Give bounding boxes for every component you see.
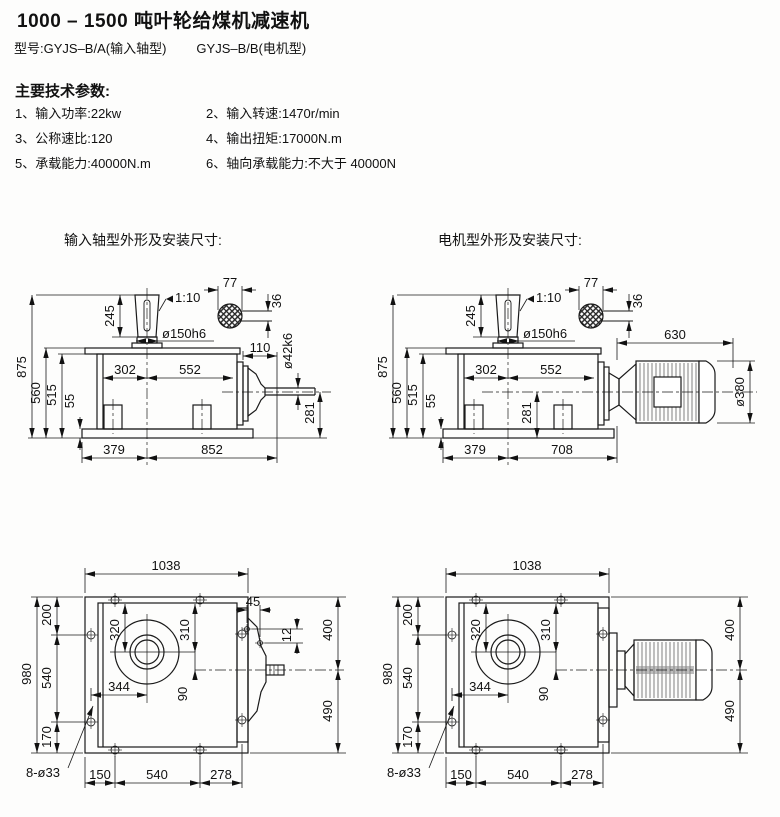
dim-si-302: 302 [114, 362, 136, 377]
dim-sm-245: 245 [463, 305, 478, 327]
plan-view-input-housing [31, 568, 249, 788]
side-view-motor-housing [389, 286, 633, 468]
dim-si-36: 36 [269, 294, 284, 308]
dimension-labels: 245 1:10 ø150h6 77 36 875 560 515 55 302… [14, 275, 747, 782]
dim-pi-170: 170 [39, 726, 54, 748]
dim-pm-344: 344 [469, 679, 491, 694]
dim-si-560: 560 [28, 382, 43, 404]
plan-view-motor-housing [392, 568, 610, 788]
dim-si-taper: 1:10 [175, 290, 200, 305]
dim-sm-552: 552 [540, 362, 562, 377]
dim-pm-400: 400 [722, 619, 737, 641]
dim-si-552: 552 [179, 362, 201, 377]
dim-sm-380: ø380 [732, 377, 747, 407]
dim-sm-36: 36 [630, 294, 645, 308]
dim-sm-708: 708 [551, 442, 573, 457]
dim-si-245: 245 [102, 305, 117, 327]
dim-pm-278: 278 [571, 767, 593, 782]
dim-pi-278: 278 [210, 767, 232, 782]
dim-pm-holes: 8-ø33 [387, 765, 421, 780]
dim-pi-540b: 540 [146, 767, 168, 782]
dim-pm-170: 170 [400, 726, 415, 748]
dim-pi-310: 310 [177, 619, 192, 641]
dim-pm-90: 90 [536, 687, 551, 701]
side-view-motor-drive [443, 338, 757, 463]
dim-sm-379: 379 [464, 442, 486, 457]
dim-si-77: 77 [223, 275, 237, 290]
dim-si-42k6: ø42k6 [280, 333, 295, 369]
dim-pi-150: 150 [89, 767, 111, 782]
dim-pi-200: 200 [39, 604, 54, 626]
side-view-input-housing [28, 286, 272, 468]
dim-pi-540: 540 [39, 667, 54, 689]
dim-si-852: 852 [201, 442, 223, 457]
dim-sm-630: 630 [664, 327, 686, 342]
dim-sm-302: 302 [475, 362, 497, 377]
dim-pm-200: 200 [400, 604, 415, 626]
dim-pi-320: 320 [107, 619, 122, 641]
dim-pm-540b: 540 [507, 767, 529, 782]
dim-sm-150h6: ø150h6 [523, 326, 567, 341]
plan-view-motor-drive [556, 597, 750, 753]
dim-pi-12: 12 [279, 628, 294, 642]
dim-pm-310: 310 [538, 619, 553, 641]
dim-sm-875: 875 [375, 356, 390, 378]
dim-pi-980: 980 [19, 663, 34, 685]
technical-drawings: 245 1:10 ø150h6 77 36 875 560 515 55 302… [0, 0, 780, 817]
dim-si-150h6: ø150h6 [162, 326, 206, 341]
dim-si-281: 281 [302, 402, 317, 424]
dim-pi-holes: 8-ø33 [26, 765, 60, 780]
dim-pi-45: 45 [246, 594, 260, 609]
dim-si-515: 515 [44, 384, 59, 406]
dim-si-110: 110 [250, 340, 271, 355]
dim-pi-490: 490 [320, 700, 335, 722]
dim-sm-55: 55 [423, 394, 438, 408]
dim-pm-980: 980 [380, 663, 395, 685]
dim-pi-400: 400 [320, 619, 335, 641]
dim-pm-540: 540 [400, 667, 415, 689]
dim-pm-490: 490 [722, 700, 737, 722]
dim-sm-560: 560 [389, 382, 404, 404]
dim-si-379: 379 [103, 442, 125, 457]
dim-pm-1038: 1038 [513, 558, 542, 573]
dim-sm-281: 281 [519, 402, 534, 424]
dim-pm-320: 320 [468, 619, 483, 641]
dim-sm-515: 515 [405, 384, 420, 406]
dim-pm-150: 150 [450, 767, 472, 782]
dim-sm-77: 77 [584, 275, 598, 290]
dim-pi-90: 90 [175, 687, 190, 701]
dim-pi-344: 344 [108, 679, 130, 694]
dim-pi-1038: 1038 [152, 558, 181, 573]
dim-sm-taper: 1:10 [536, 290, 561, 305]
dim-si-875: 875 [14, 356, 29, 378]
dim-si-55: 55 [62, 394, 77, 408]
